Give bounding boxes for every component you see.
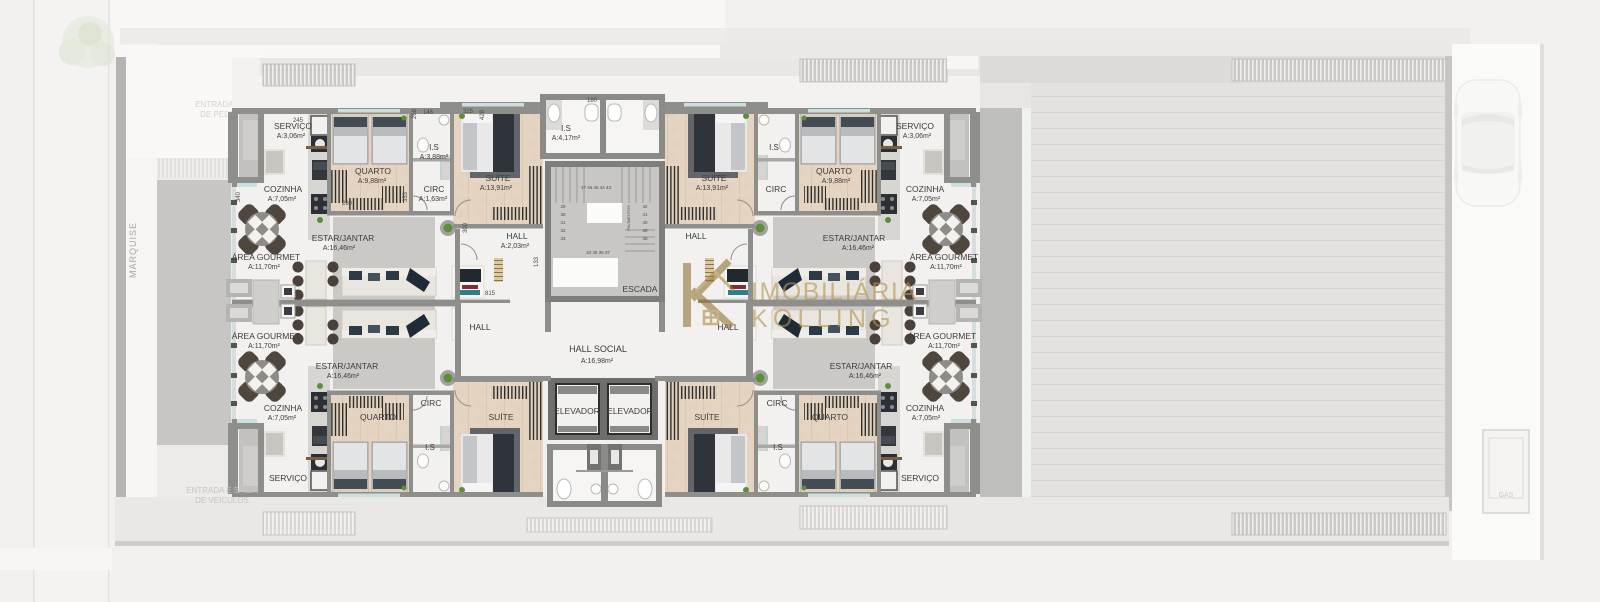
svg-text:A:16,46m²: A:16,46m² xyxy=(323,245,356,252)
svg-text:ESTAR/JANTAR: ESTAR/JANTAR xyxy=(830,361,893,371)
svg-text:A:11,70m²: A:11,70m² xyxy=(930,264,962,271)
svg-text:29: 29 xyxy=(560,204,566,209)
svg-text:GÁS: GÁS xyxy=(1499,490,1514,499)
svg-text:HALL: HALL xyxy=(685,231,707,241)
svg-text:HALL SOCIAL: HALL SOCIAL xyxy=(569,344,627,354)
svg-text:A:2,03m²: A:2,03m² xyxy=(501,243,530,250)
svg-text:A:16,98m²: A:16,98m² xyxy=(581,358,614,365)
svg-text:ESTAR/JANTAR: ESTAR/JANTAR xyxy=(316,361,379,371)
svg-text:A:11,70m²: A:11,70m² xyxy=(928,343,960,350)
svg-text:COZINHA: COZINHA xyxy=(906,184,945,194)
svg-text:133: 133 xyxy=(534,256,540,267)
svg-text:PAVIMENTOS: PAVIMENTOS xyxy=(626,205,631,231)
svg-text:I.S: I.S xyxy=(773,443,783,452)
svg-text:COZINHA: COZINHA xyxy=(906,403,945,413)
svg-text:COZINHA: COZINHA xyxy=(264,184,303,194)
svg-text:428: 428 xyxy=(480,109,486,120)
svg-text:38: 38 xyxy=(642,236,648,241)
svg-text:280: 280 xyxy=(342,201,353,207)
svg-text:ENTRADA E SAÍDA: ENTRADA E SAÍDA xyxy=(186,486,258,495)
svg-text:QUARTO: QUARTO xyxy=(812,412,848,422)
svg-text:COZINHA: COZINHA xyxy=(264,403,303,413)
svg-text:SERVIÇO: SERVIÇO xyxy=(896,121,934,131)
svg-text:40: 40 xyxy=(642,220,648,225)
svg-text:A:16,46m²: A:16,46m² xyxy=(327,373,360,380)
svg-text:39: 39 xyxy=(642,228,648,233)
svg-text:180: 180 xyxy=(587,98,598,104)
svg-text:A:11,70m²: A:11,70m² xyxy=(248,264,280,271)
svg-text:A:3,88m²: A:3,88m² xyxy=(420,154,449,161)
svg-text:47 46 45 44 43: 47 46 45 44 43 xyxy=(581,185,612,190)
svg-text:QUARTO: QUARTO xyxy=(360,412,396,422)
svg-text:QUARTO: QUARTO xyxy=(355,166,391,176)
svg-text:I.S: I.S xyxy=(429,143,439,152)
svg-text:CIRC: CIRC xyxy=(424,184,445,194)
svg-text:QUARTO: QUARTO xyxy=(816,166,852,176)
svg-text:A:4,17m²: A:4,17m² xyxy=(552,135,581,142)
svg-text:30: 30 xyxy=(560,212,566,217)
svg-text:31: 31 xyxy=(560,220,566,225)
svg-text:245: 245 xyxy=(293,118,304,124)
svg-text:A:9,88m²: A:9,88m² xyxy=(358,178,387,185)
svg-text:A:7,05m²: A:7,05m² xyxy=(268,415,297,422)
svg-text:A:3,06m²: A:3,06m² xyxy=(277,133,306,140)
svg-text:A:16,46m²: A:16,46m² xyxy=(849,373,882,380)
svg-text:34 35 36 37: 34 35 36 37 xyxy=(586,250,610,255)
svg-text:A:1,63m²: A:1,63m² xyxy=(419,196,448,203)
svg-text:A:7,05m²: A:7,05m² xyxy=(912,415,941,422)
svg-text:ÁREA GOURMET: ÁREA GOURMET xyxy=(232,331,300,341)
svg-text:32: 32 xyxy=(560,228,566,233)
svg-text:ESTAR/JANTAR: ESTAR/JANTAR xyxy=(312,233,375,243)
svg-text:340: 340 xyxy=(236,191,242,202)
svg-text:I.S: I.S xyxy=(561,124,571,133)
svg-text:ESTAR/JANTAR: ESTAR/JANTAR xyxy=(823,233,886,243)
svg-text:SUÍTE: SUÍTE xyxy=(488,412,513,422)
svg-text:DE VEÍCULOS: DE VEÍCULOS xyxy=(195,496,249,505)
svg-text:300: 300 xyxy=(463,222,469,233)
svg-text:A:7,05m²: A:7,05m² xyxy=(912,196,941,203)
svg-text:ESCADA: ESCADA xyxy=(623,284,658,294)
svg-text:ÁREA GOURMET: ÁREA GOURMET xyxy=(232,252,300,262)
svg-text:I.S: I.S xyxy=(425,443,435,452)
svg-text:815: 815 xyxy=(485,291,496,297)
svg-text:A:7,05m²: A:7,05m² xyxy=(268,196,297,203)
svg-text:A:9,88m²: A:9,88m² xyxy=(822,178,851,185)
svg-text:A:3,06m²: A:3,06m² xyxy=(903,133,932,140)
svg-text:A:16,46m²: A:16,46m² xyxy=(842,245,875,252)
svg-text:HALL: HALL xyxy=(506,231,528,241)
svg-text:ELEVADOR: ELEVADOR xyxy=(607,406,653,416)
svg-text:SERVIÇO: SERVIÇO xyxy=(269,473,307,483)
svg-text:CIRC: CIRC xyxy=(766,184,787,194)
svg-text:ÁREA GOURMET: ÁREA GOURMET xyxy=(908,331,976,341)
svg-text:SERVIÇO: SERVIÇO xyxy=(901,473,939,483)
svg-text:HALL: HALL xyxy=(469,322,491,332)
svg-text:A:13,91m²: A:13,91m² xyxy=(480,185,513,192)
svg-text:I.S: I.S xyxy=(769,143,779,152)
svg-text:325: 325 xyxy=(463,109,474,115)
svg-text:KOLLING: KOLLING xyxy=(751,305,896,333)
svg-text:A:11,70m²: A:11,70m² xyxy=(248,343,280,350)
svg-text:353: 353 xyxy=(403,191,409,202)
svg-text:SUÍTE: SUÍTE xyxy=(694,412,719,422)
svg-text:CIRC: CIRC xyxy=(767,398,788,408)
svg-text:33: 33 xyxy=(560,236,566,241)
svg-text:CIRC: CIRC xyxy=(421,398,442,408)
svg-text:ÁREA GOURMET: ÁREA GOURMET xyxy=(910,252,978,262)
svg-text:ELEVADOR: ELEVADOR xyxy=(554,406,600,416)
svg-text:MARQUISE: MARQUISE xyxy=(128,222,138,278)
svg-text:268: 268 xyxy=(412,108,418,119)
svg-text:SUÍTE: SUÍTE xyxy=(701,173,726,183)
svg-text:146: 146 xyxy=(423,110,434,116)
svg-text:SUÍTE: SUÍTE xyxy=(485,173,510,183)
svg-text:A:13,91m²: A:13,91m² xyxy=(696,185,729,192)
svg-text:41: 41 xyxy=(642,212,648,217)
svg-text:42: 42 xyxy=(642,204,648,209)
svg-text:IMOBILIÁRIA: IMOBILIÁRIA xyxy=(751,277,918,306)
